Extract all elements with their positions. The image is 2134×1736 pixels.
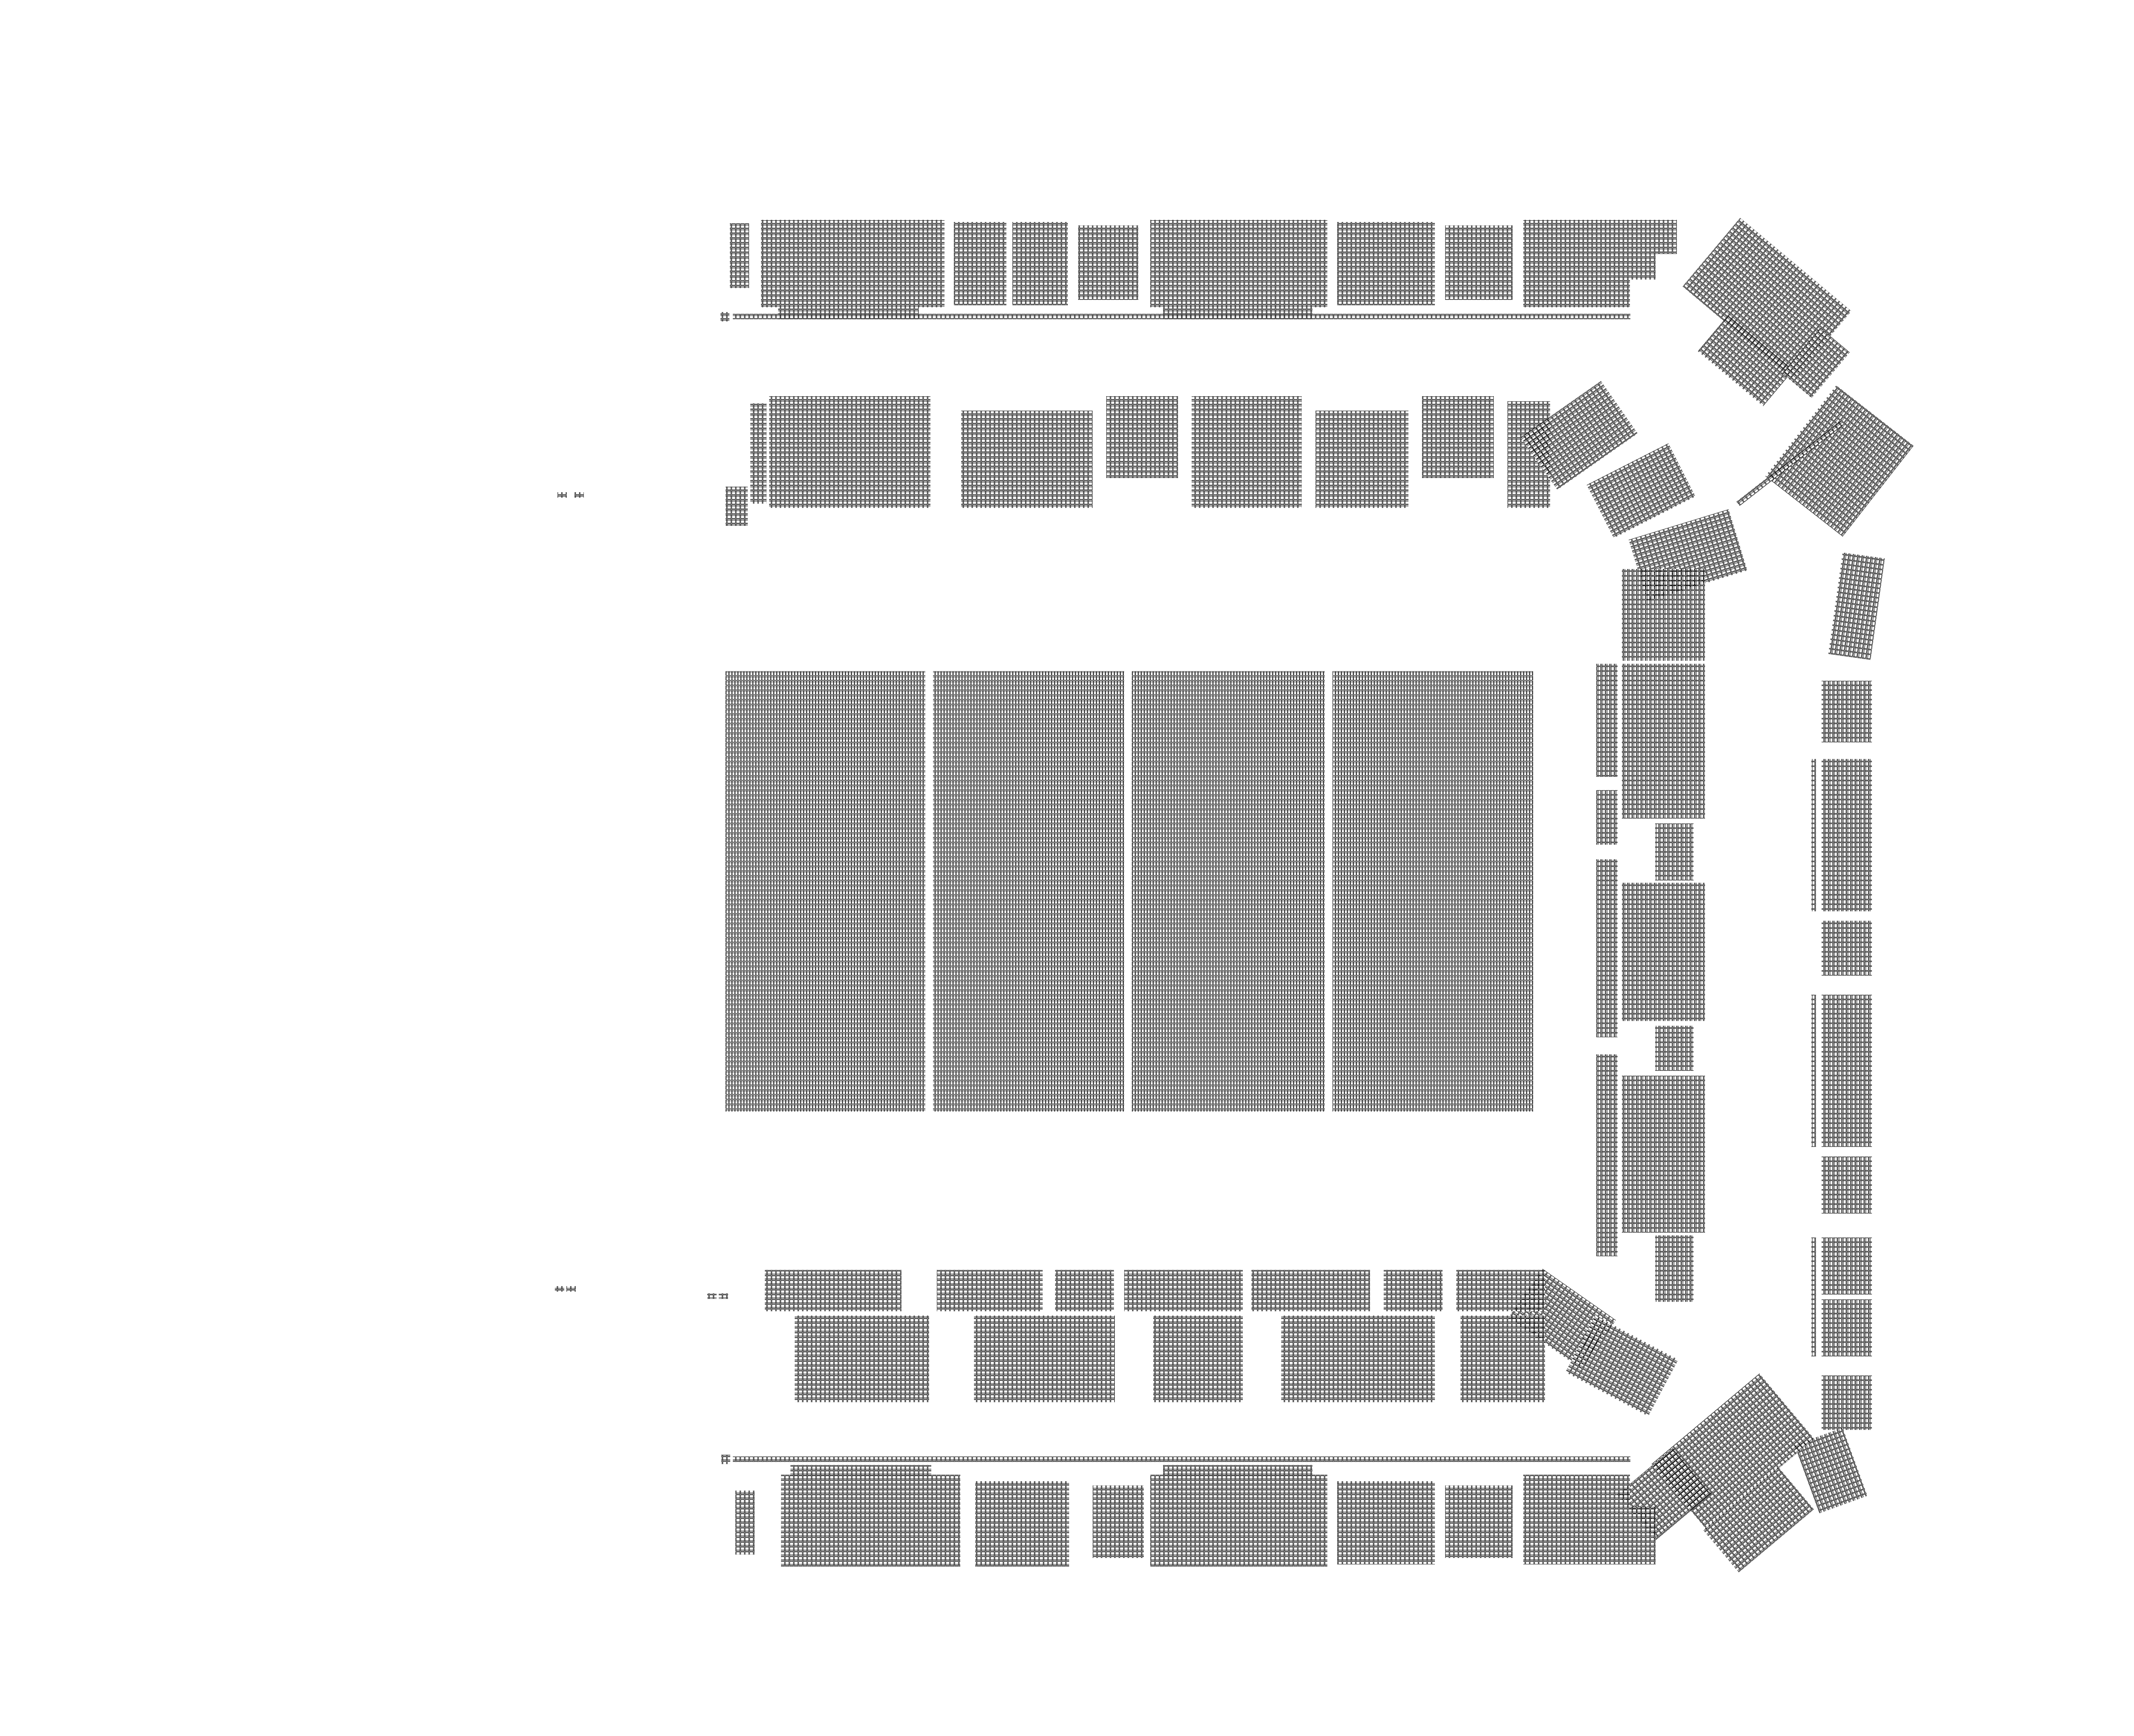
seat-section-top-block-3[interactable] bbox=[1078, 225, 1138, 300]
seat-section-top-rail-strip[interactable] bbox=[733, 314, 1630, 319]
seat-section-bottom-rail-pair[interactable] bbox=[721, 1455, 730, 1464]
seat-section-inner-arc-1[interactable] bbox=[1622, 664, 1705, 819]
seat-section-band3-block-1-lower[interactable] bbox=[795, 1316, 929, 1402]
seat-section-band3-block-1-upper[interactable] bbox=[765, 1270, 901, 1311]
seat-section-band3-pair-4[interactable] bbox=[719, 1293, 728, 1299]
seat-section-bottom-block-4[interactable] bbox=[1150, 1475, 1327, 1567]
seat-section-bottom-block-5[interactable] bbox=[1337, 1481, 1435, 1564]
seat-section-band2-block-2[interactable] bbox=[961, 411, 1093, 508]
seat-section-band2-block-1[interactable] bbox=[769, 396, 930, 508]
seat-section-band2-block-6[interactable] bbox=[1422, 396, 1494, 478]
seat-section-outer-arc-top[interactable] bbox=[1828, 552, 1885, 660]
seat-section-outer-arc-2[interactable] bbox=[1822, 759, 1872, 911]
seat-section-outer-arc-2-rail[interactable] bbox=[1811, 759, 1816, 911]
seat-section-band2-block-3[interactable] bbox=[1106, 396, 1178, 478]
seat-section-top-block-1[interactable] bbox=[761, 220, 945, 307]
seat-section-floor-block-4[interactable] bbox=[1332, 671, 1533, 1112]
seat-section-band2-block-4[interactable] bbox=[1192, 396, 1302, 508]
seat-section-band3-block-6-upper[interactable] bbox=[1384, 1270, 1443, 1311]
seat-section-inner-arc-small-2[interactable] bbox=[1655, 1026, 1694, 1071]
seat-section-top-block-7-step2[interactable] bbox=[1656, 220, 1677, 254]
seat-section-outer-arc-4-rail[interactable] bbox=[1811, 995, 1816, 1147]
seat-section-band2-pair-2[interactable] bbox=[574, 492, 584, 498]
seat-section-floor-block-1[interactable] bbox=[726, 671, 925, 1112]
seat-section-bottom-block-1-apron[interactable] bbox=[790, 1465, 931, 1476]
seat-section-inner-arc-2[interactable] bbox=[1622, 883, 1705, 1021]
seat-section-inner-arc-1-strip[interactable] bbox=[1596, 664, 1618, 777]
seat-section-band3-block-5-upper[interactable] bbox=[1251, 1270, 1370, 1311]
seat-section-top-rail-pair[interactable] bbox=[720, 312, 729, 321]
seat-section-band3-pair-1[interactable] bbox=[555, 1286, 564, 1292]
seat-section-band3-block-4-lower[interactable] bbox=[1153, 1316, 1243, 1402]
seat-section-outer-arc-1[interactable] bbox=[1822, 681, 1872, 742]
seat-section-top-block-5[interactable] bbox=[1337, 222, 1435, 305]
seat-section-bottom-block-4-apron[interactable] bbox=[1163, 1465, 1312, 1476]
seat-section-inner-arc-small-1[interactable] bbox=[1655, 823, 1694, 881]
seat-section-floor-block-2[interactable] bbox=[933, 671, 1124, 1112]
seat-section-top-block-2b[interactable] bbox=[1012, 222, 1068, 305]
seat-section-top-left-column[interactable] bbox=[730, 223, 749, 288]
seat-section-band2-column[interactable] bbox=[750, 403, 767, 504]
seat-section-bottom-block-7[interactable] bbox=[1523, 1475, 1630, 1564]
seat-section-top-block-7-step1[interactable] bbox=[1630, 220, 1656, 280]
seat-section-inner-arc-strip-2[interactable] bbox=[1596, 790, 1618, 845]
seat-section-band2-pair-1[interactable] bbox=[557, 492, 567, 498]
seat-section-outer-arc-5[interactable] bbox=[1822, 1156, 1872, 1214]
seat-section-band2-block-5[interactable] bbox=[1315, 411, 1408, 508]
seat-section-outer-arc-3[interactable] bbox=[1822, 921, 1872, 976]
seat-section-inner-arc-strip-4[interactable] bbox=[1596, 1054, 1618, 1256]
seat-section-band3-block-4-upper[interactable] bbox=[1124, 1270, 1243, 1311]
seat-section-band3-block-5-lower[interactable] bbox=[1281, 1316, 1435, 1402]
seat-section-ne-outer-block[interactable] bbox=[1765, 385, 1913, 537]
seat-section-outer-arc-8[interactable] bbox=[1822, 1375, 1872, 1430]
seat-section-top-block-4[interactable] bbox=[1150, 220, 1327, 307]
seat-section-inner-arc-3[interactable] bbox=[1622, 1076, 1705, 1233]
venue-seat-map bbox=[0, 0, 2134, 1736]
seat-section-band3-block-3-upper[interactable] bbox=[1055, 1270, 1114, 1311]
seat-section-top-block-2a[interactable] bbox=[954, 222, 1006, 305]
seat-map-canvas bbox=[0, 0, 2134, 1736]
seat-section-bottom-block-2[interactable] bbox=[975, 1481, 1069, 1567]
seat-section-band3-block-7-upper[interactable] bbox=[1456, 1270, 1545, 1311]
seat-section-inner-arc-strip-3[interactable] bbox=[1596, 859, 1618, 1037]
seat-section-band3-pair-3[interactable] bbox=[707, 1293, 717, 1299]
seat-section-bottom-block-7-step[interactable] bbox=[1630, 1507, 1656, 1564]
seat-section-bottom-rail-strip[interactable] bbox=[733, 1456, 1630, 1462]
seat-section-bottom-block-3[interactable] bbox=[1093, 1485, 1144, 1558]
seat-section-outer-arc-4[interactable] bbox=[1822, 995, 1872, 1147]
seat-section-band3-block-2-upper[interactable] bbox=[937, 1270, 1043, 1311]
seat-section-bottom-block-6[interactable] bbox=[1445, 1485, 1513, 1558]
seat-section-floor-block-3[interactable] bbox=[1132, 671, 1325, 1112]
seat-sections-layer bbox=[555, 218, 1914, 1572]
seat-section-inner-arc-small-3[interactable] bbox=[1655, 1235, 1694, 1302]
seat-section-outer-arc-6[interactable] bbox=[1822, 1237, 1872, 1295]
seat-section-inner-arc-top[interactable] bbox=[1622, 569, 1705, 661]
seat-section-band2-start[interactable] bbox=[726, 487, 748, 526]
seat-section-bottom-left-column[interactable] bbox=[735, 1491, 755, 1555]
seat-section-bottom-block-1[interactable] bbox=[781, 1475, 960, 1567]
seat-section-band3-block-7-lower[interactable] bbox=[1461, 1316, 1545, 1402]
seat-section-top-block-7[interactable] bbox=[1523, 220, 1630, 307]
seat-section-outer-arc-6-rail[interactable] bbox=[1811, 1237, 1816, 1357]
seat-section-band3-pair-2[interactable] bbox=[566, 1286, 576, 1292]
seat-section-top-block-6[interactable] bbox=[1445, 225, 1513, 300]
seat-section-band3-block-2-lower[interactable] bbox=[974, 1316, 1115, 1402]
seat-section-outer-arc-7[interactable] bbox=[1822, 1299, 1872, 1357]
